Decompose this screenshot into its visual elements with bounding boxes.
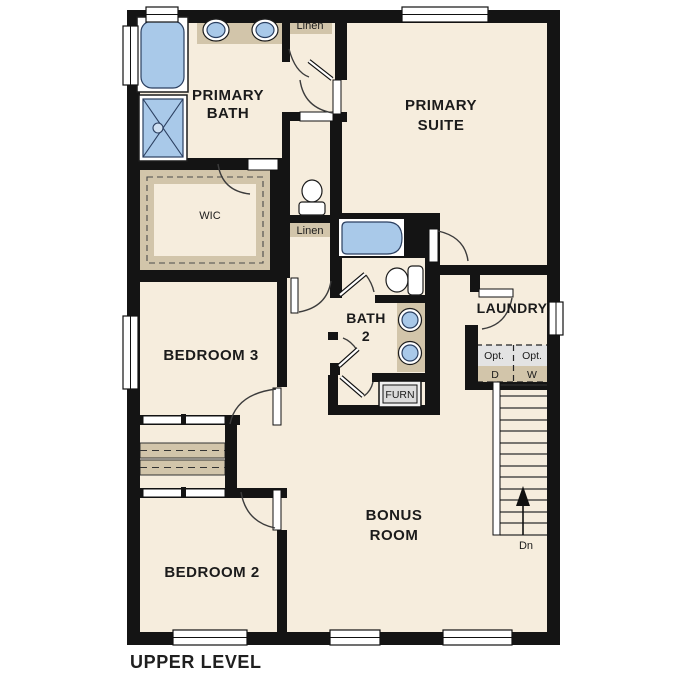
primary-bath-door-leaf <box>333 80 341 114</box>
wic-door-opening <box>248 159 278 170</box>
wall-segment <box>335 10 347 62</box>
bedroom2-closet-bypass-doors <box>143 487 225 498</box>
opt-washer-label: Opt. <box>522 350 542 362</box>
toilet-bowl <box>302 180 322 202</box>
wall-segment <box>375 295 425 303</box>
toilet-bowl <box>386 268 408 292</box>
bedroom3-closet-shelf <box>140 443 225 458</box>
sink-basin <box>207 23 225 38</box>
bonus-room-label-2: ROOM <box>370 527 419 544</box>
wall-segment <box>225 415 237 498</box>
toilet-tank <box>408 266 423 295</box>
washer-label: W <box>527 369 537 381</box>
shower-drain <box>153 123 163 133</box>
wall-segment <box>277 282 287 387</box>
window <box>146 7 178 22</box>
laundry-label: LAUNDRY <box>477 300 548 316</box>
stair-stringer <box>493 382 500 535</box>
floor-area <box>127 10 560 645</box>
wall-segment <box>465 325 478 390</box>
window <box>402 7 488 22</box>
dryer-label: D <box>491 369 499 381</box>
bedroom3-label: BEDROOM 3 <box>163 347 258 364</box>
wic-label: WIC <box>199 210 220 222</box>
wall-segment <box>335 62 347 80</box>
furnace-label: FURN <box>385 389 414 401</box>
wall-segment <box>465 382 560 390</box>
bonus-room-label: BONUS <box>366 507 423 524</box>
window <box>549 302 563 335</box>
bedroom2-door-leaf <box>273 490 281 530</box>
wall-segment <box>282 215 337 223</box>
opt-dryer-label: Opt. <box>484 350 504 362</box>
floor-plan-page: PRIMARY BATH PRIMARY SUITE WIC BEDROOM 3… <box>0 0 687 687</box>
floor-plan-canvas: PRIMARY BATH PRIMARY SUITE WIC BEDROOM 3… <box>0 0 687 687</box>
wall-segment <box>328 332 338 340</box>
wall-segment <box>282 10 290 62</box>
window <box>123 26 138 85</box>
sink-basin <box>402 312 418 328</box>
page-title: UPPER LEVEL <box>130 652 262 672</box>
bath2-label-2: 2 <box>362 328 370 344</box>
primary-suite-label-2: SUITE <box>418 117 465 134</box>
wall-segment <box>270 158 282 282</box>
wall-segment <box>127 270 287 282</box>
linen1-label: Linen <box>297 20 324 32</box>
bedroom3-closet-bypass-doors <box>143 414 225 425</box>
primary-bath-label-2: BATH <box>207 105 250 122</box>
window <box>123 316 138 389</box>
primary-suite-label: PRIMARY <box>405 97 477 114</box>
linen2-label: Linen <box>297 225 324 237</box>
wall-segment <box>330 121 342 298</box>
window <box>443 630 512 645</box>
wc-cased-opening <box>300 112 333 121</box>
wall-segment <box>282 121 290 215</box>
laundry-door-leaf <box>479 289 513 297</box>
tub-basin <box>141 21 184 88</box>
bedroom2-label: BEDROOM 2 <box>164 564 259 581</box>
tub-basin <box>342 222 402 254</box>
primary-bath-label: PRIMARY <box>192 87 264 104</box>
primary-tub <box>137 17 188 92</box>
bedroom3-door-leaf <box>273 388 281 425</box>
bath2-label: BATH <box>346 310 385 326</box>
window <box>330 630 380 645</box>
window <box>173 630 247 645</box>
stairs-down-label: Dn <box>519 540 533 552</box>
wall-segment <box>277 530 287 632</box>
sink-basin <box>256 23 274 38</box>
primary-suite-door-leaf <box>429 229 438 262</box>
wall-segment <box>428 265 560 275</box>
linen2-door-leaf <box>291 278 298 313</box>
toilet-tank <box>299 202 325 215</box>
wall-segment <box>282 223 290 278</box>
primary-shower <box>139 95 187 161</box>
sink-basin <box>402 345 418 361</box>
bath2-tub <box>337 216 428 258</box>
bedroom2-closet-shelf <box>140 460 225 475</box>
